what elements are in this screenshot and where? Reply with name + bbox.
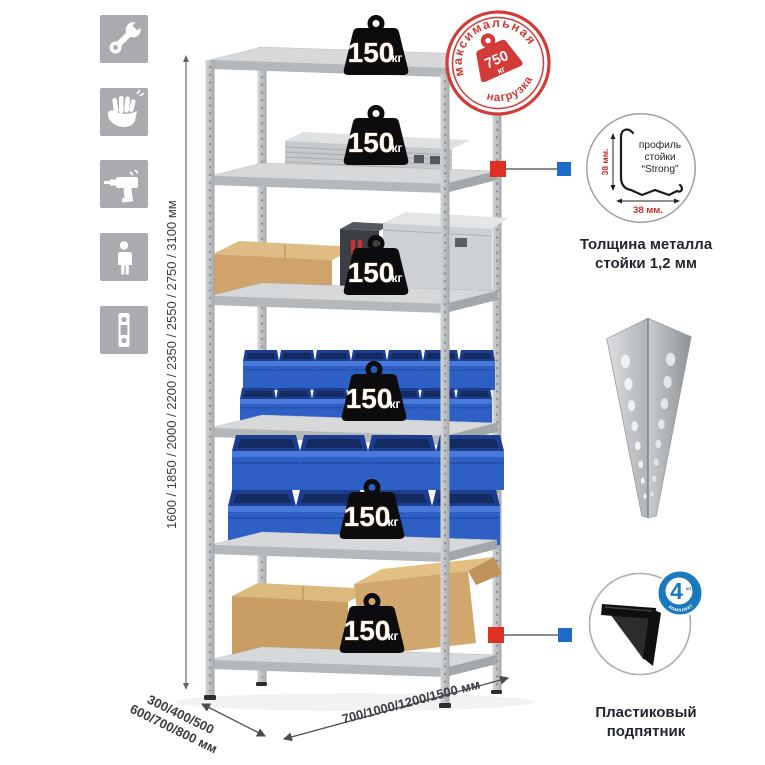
svg-text:38 мм.: 38 мм. xyxy=(633,205,663,216)
shelf-load-unit: кг xyxy=(387,629,398,643)
callout-connector-bottom xyxy=(488,627,572,643)
red-marker-square xyxy=(490,161,506,177)
shelf-load-badge: 150 кг xyxy=(326,592,418,656)
foot-pad xyxy=(204,695,216,700)
callout-connector-top xyxy=(490,161,571,177)
shelf-load-unit: кг xyxy=(387,515,398,529)
shelf-load-unit: кг xyxy=(391,141,402,155)
weight-knob-icon xyxy=(366,482,378,494)
shelf-load-unit: кг xyxy=(391,271,402,285)
svg-text:38 мм.: 38 мм. xyxy=(600,149,610,176)
shelf-load-badge: 150 кг xyxy=(326,478,418,542)
level-icon xyxy=(100,306,148,354)
shelf-load-unit: кг xyxy=(391,51,402,65)
foot-pad xyxy=(439,703,451,708)
shelf-load-value: 150 xyxy=(348,127,395,158)
foot-pad xyxy=(491,690,502,694)
max-load-stamp: максимальная нагрузка 750 кг xyxy=(442,7,554,124)
shelf-load-badge: 150 кг xyxy=(328,360,420,424)
weight-knob-icon xyxy=(368,364,380,376)
weight-knob-icon xyxy=(370,18,382,30)
foot-caption-line1: Пластиковый xyxy=(571,703,721,722)
shelf-load-value: 150 xyxy=(344,615,391,646)
wrench-icon xyxy=(100,15,148,63)
profile-caption-line2: стойки 1,2 мм xyxy=(571,254,721,273)
badge-count-small-label: штуки xyxy=(686,586,699,591)
red-marker-square xyxy=(488,627,504,643)
shelf-load-badge: 150 кг xyxy=(330,14,422,78)
included-count-badge: 4 штуки в комплекте xyxy=(656,569,704,622)
blue-marker-square xyxy=(558,628,572,642)
shelf-load-value: 150 xyxy=(344,501,391,532)
shelf-load-badge: 150 кг xyxy=(330,104,422,168)
foot-pad xyxy=(256,682,267,686)
profile-label-line3: “Strong” xyxy=(642,164,679,175)
weight-knob-icon xyxy=(370,238,382,250)
shelf-load-value: 150 xyxy=(348,37,395,68)
angle-post-image xyxy=(598,310,698,527)
shelf-load-value: 150 xyxy=(348,257,395,288)
person-icon xyxy=(100,233,148,281)
glove-icon xyxy=(100,88,148,136)
shelf-load-unit: кг xyxy=(389,397,400,411)
shelving-infographic: 150 кг 150 кг 150 кг 150 кг 150 xyxy=(0,0,765,765)
blue-marker-square xyxy=(557,162,571,176)
drill-icon xyxy=(100,160,148,208)
shelf-load-badge: 150 кг xyxy=(330,234,422,298)
profile-label-line2: стойки xyxy=(644,152,675,163)
height-dimension-label: 1600 / 1850 / 2000 / 2200 / 2350 / 2550 … xyxy=(160,205,184,529)
profile-caption-line1: Толщина металла xyxy=(571,235,721,254)
shelf-load-value: 150 xyxy=(346,383,393,414)
weight-knob-icon xyxy=(366,596,378,608)
post-profile-detail: 38 мм. 38 мм. профиль стойки “Strong” xyxy=(585,112,697,229)
foot-caption: Пластиковый подпятник xyxy=(571,703,721,741)
weight-knob-icon xyxy=(370,108,382,120)
badge-count-value: 4 xyxy=(670,578,683,604)
foot-caption-line2: подпятник xyxy=(571,722,721,741)
profile-caption: Толщина металла стойки 1,2 мм xyxy=(571,235,721,273)
profile-label-line1: профиль xyxy=(639,139,681,151)
